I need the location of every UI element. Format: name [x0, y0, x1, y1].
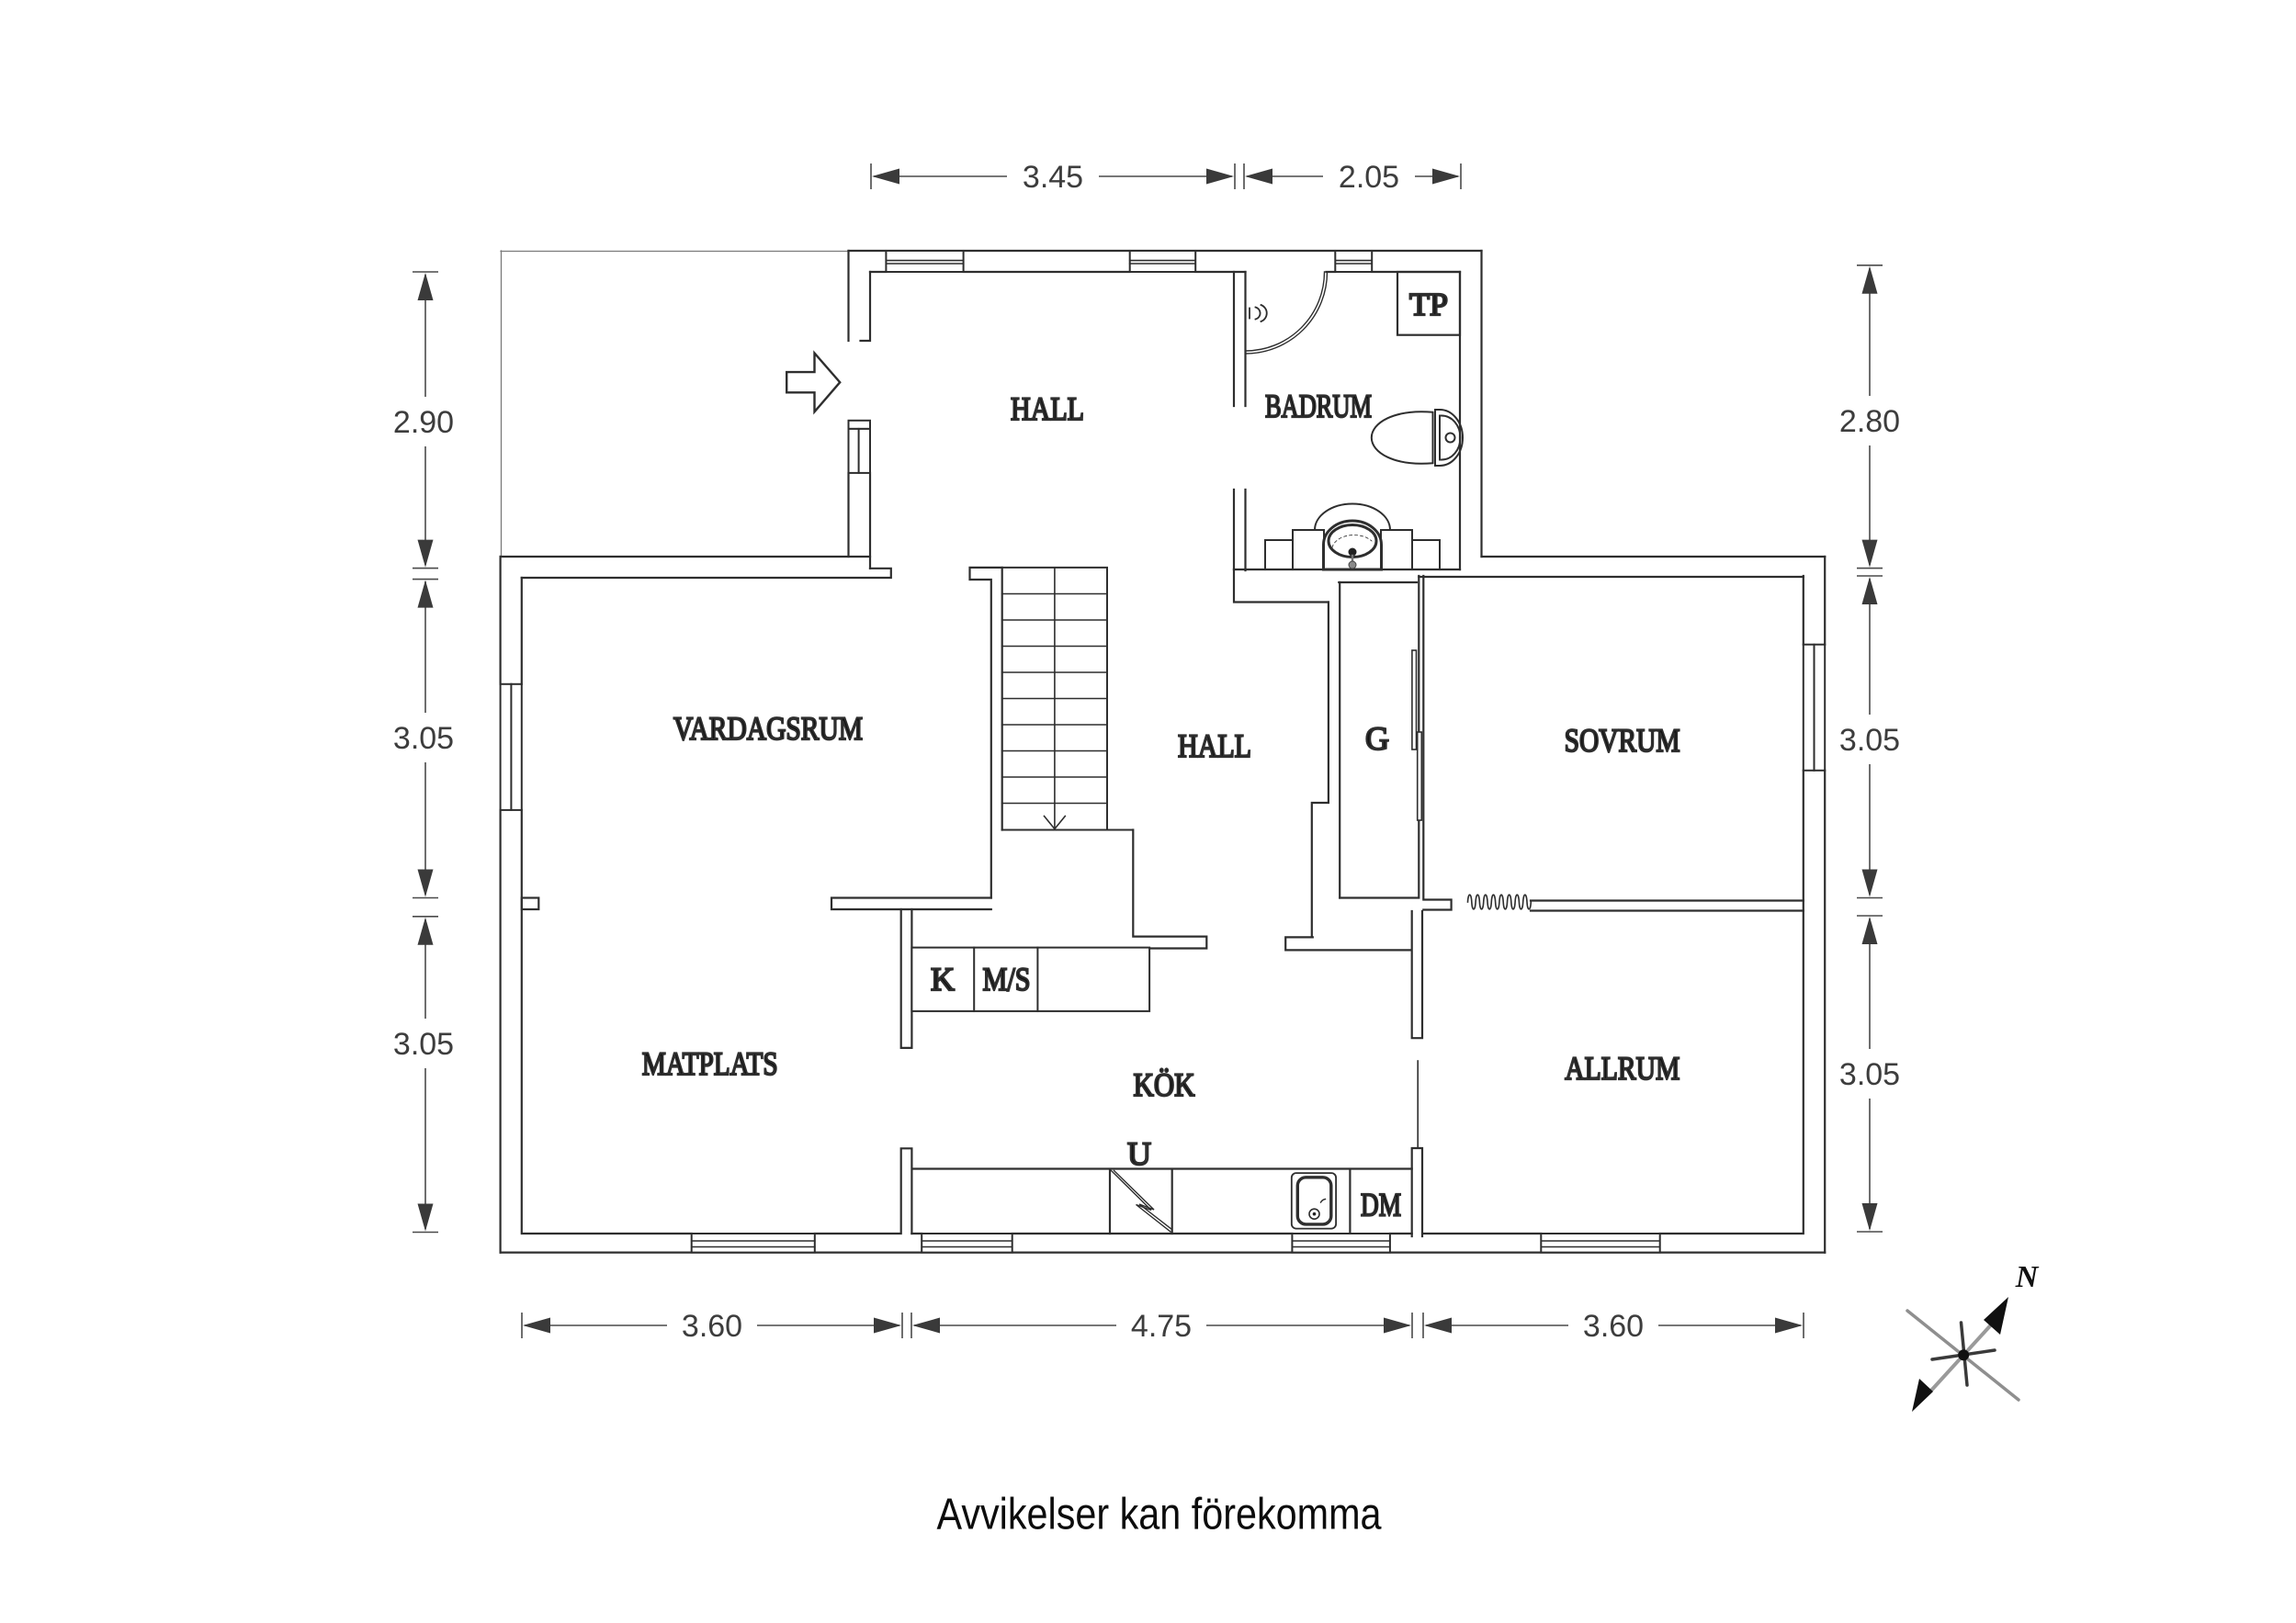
svg-text:3.60: 3.60	[1583, 1309, 1644, 1344]
svg-text:HALL: HALL	[1178, 727, 1251, 764]
svg-text:3.05: 3.05	[393, 721, 454, 756]
svg-text:3.05: 3.05	[393, 1027, 454, 1062]
svg-text:HALL: HALL	[1011, 390, 1084, 427]
svg-text:3.45: 3.45	[1023, 160, 1083, 195]
svg-text:4.75: 4.75	[1131, 1309, 1192, 1344]
svg-text:2.05: 2.05	[1339, 160, 1399, 195]
svg-text:2.80: 2.80	[1839, 404, 1900, 439]
svg-text:ALLRUM: ALLRUM	[1565, 1050, 1680, 1087]
svg-text:N: N	[2015, 1260, 2040, 1294]
svg-text:TP: TP	[1409, 287, 1448, 322]
svg-text:3.05: 3.05	[1839, 723, 1900, 758]
svg-text:G: G	[1365, 720, 1389, 757]
svg-text:VARDAGSRUM: VARDAGSRUM	[673, 710, 863, 747]
svg-text:BADRUM: BADRUM	[1265, 388, 1372, 424]
svg-text:MATPLATS: MATPLATS	[642, 1045, 778, 1082]
svg-text:Avvikelser kan förekomma: Avvikelser kan förekomma	[937, 1491, 1382, 1539]
svg-text:SOVRUM: SOVRUM	[1565, 722, 1680, 759]
svg-text:3.05: 3.05	[1839, 1057, 1900, 1092]
svg-text:KÖK: KÖK	[1134, 1066, 1195, 1103]
svg-text:DM: DM	[1361, 1187, 1401, 1223]
svg-text:K: K	[931, 961, 955, 997]
svg-text:2.90: 2.90	[393, 405, 454, 440]
svg-text:M/S: M/S	[983, 961, 1031, 997]
svg-text:3.60: 3.60	[682, 1309, 742, 1344]
svg-text:U: U	[1127, 1135, 1151, 1172]
